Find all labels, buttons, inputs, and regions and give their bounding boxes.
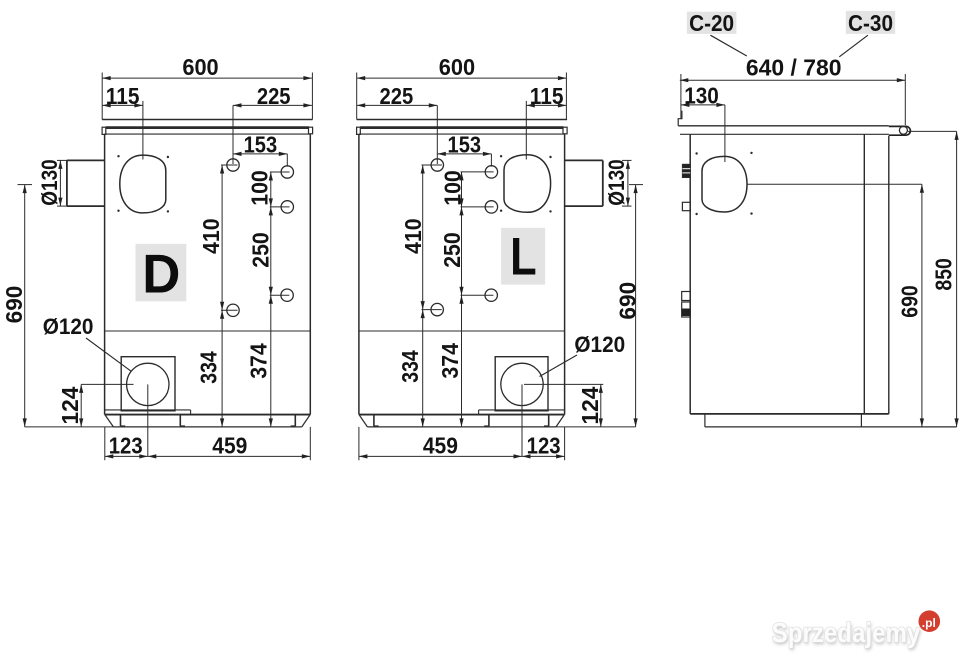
svg-text:C-20: C-20 [689,10,734,36]
svg-text:124: 124 [57,386,83,424]
svg-text:410: 410 [400,218,426,254]
svg-text:690: 690 [896,285,922,317]
svg-text:410: 410 [198,218,224,254]
svg-text:D: D [142,244,180,305]
svg-text:250: 250 [439,232,465,268]
svg-text:850: 850 [931,258,957,290]
svg-text:225: 225 [380,83,414,109]
svg-text:Ø120: Ø120 [574,332,625,357]
svg-text:123: 123 [109,432,143,458]
svg-text:C-30: C-30 [848,10,893,36]
svg-text:L: L [510,227,537,286]
svg-text:115: 115 [530,83,564,109]
svg-text:123: 123 [527,432,561,458]
svg-text:250: 250 [248,232,274,268]
svg-text:225: 225 [257,83,291,109]
svg-text:Sprzedajemy: Sprzedajemy [772,617,921,648]
svg-text:690: 690 [1,286,27,324]
svg-text:Ø120: Ø120 [43,314,94,339]
svg-text:Ø130: Ø130 [37,159,62,205]
svg-text:600: 600 [439,54,475,80]
svg-text:374: 374 [437,343,463,379]
svg-text:124: 124 [577,386,603,424]
svg-text:374: 374 [246,343,272,379]
svg-text:640 / 780: 640 / 780 [746,54,842,80]
svg-text:600: 600 [182,54,218,80]
svg-text:100: 100 [439,170,465,206]
svg-text:130: 130 [684,82,719,108]
svg-text:334: 334 [196,351,222,384]
svg-text:115: 115 [106,83,140,109]
svg-text:690: 690 [615,282,641,320]
svg-text:459: 459 [423,432,458,458]
svg-text:153: 153 [244,131,278,157]
svg-text:153: 153 [448,131,482,157]
svg-text:100: 100 [246,170,272,206]
svg-text:Ø130: Ø130 [604,159,629,205]
svg-text:334: 334 [397,350,423,383]
svg-text:.pl: .pl [922,616,936,630]
svg-text:459: 459 [212,432,247,458]
